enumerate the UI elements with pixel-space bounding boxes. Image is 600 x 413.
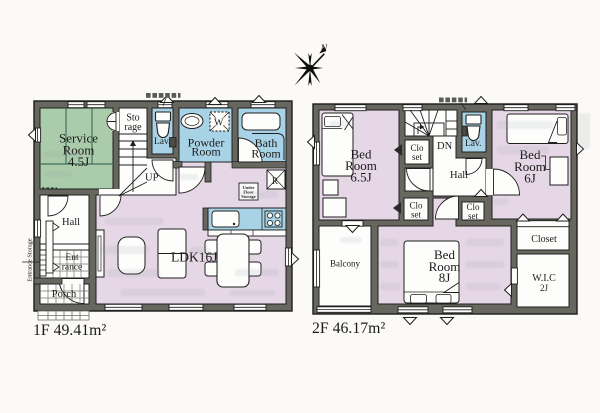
svg-text:2J: 2J [540, 283, 549, 293]
svg-text:set: set [468, 211, 478, 221]
svg-text:N: N [320, 44, 329, 55]
svg-text:Balcony: Balcony [330, 259, 360, 269]
svg-text:W: W [214, 118, 224, 129]
svg-text:2F 46.17m²: 2F 46.17m² [312, 320, 385, 337]
svg-text:Porch: Porch [52, 289, 77, 300]
svg-text:Hall: Hall [62, 217, 80, 228]
svg-text:1F 49.41m²: 1F 49.41m² [33, 322, 106, 339]
svg-text:Closet: Closet [531, 234, 557, 245]
svg-text:rance: rance [62, 263, 83, 273]
svg-text:Lav.: Lav. [465, 139, 482, 149]
svg-text:UP: UP [145, 173, 159, 184]
svg-text:Room: Room [251, 147, 281, 161]
svg-text:Entrance Storage: Entrance Storage [27, 238, 34, 281]
svg-text:8J: 8J [439, 270, 451, 285]
svg-text:R: R [272, 176, 278, 186]
svg-text:Lav.: Lav. [154, 137, 171, 147]
svg-text:set: set [412, 152, 422, 162]
svg-text:rage: rage [124, 122, 142, 133]
svg-text:6.5J: 6.5J [350, 170, 371, 185]
svg-text:6J: 6J [524, 171, 536, 186]
svg-text:Ent: Ent [65, 253, 79, 263]
svg-text:DN: DN [437, 141, 453, 152]
svg-text:Hall: Hall [450, 170, 468, 181]
svg-text:Room: Room [191, 145, 221, 159]
svg-text:set: set [411, 210, 421, 220]
